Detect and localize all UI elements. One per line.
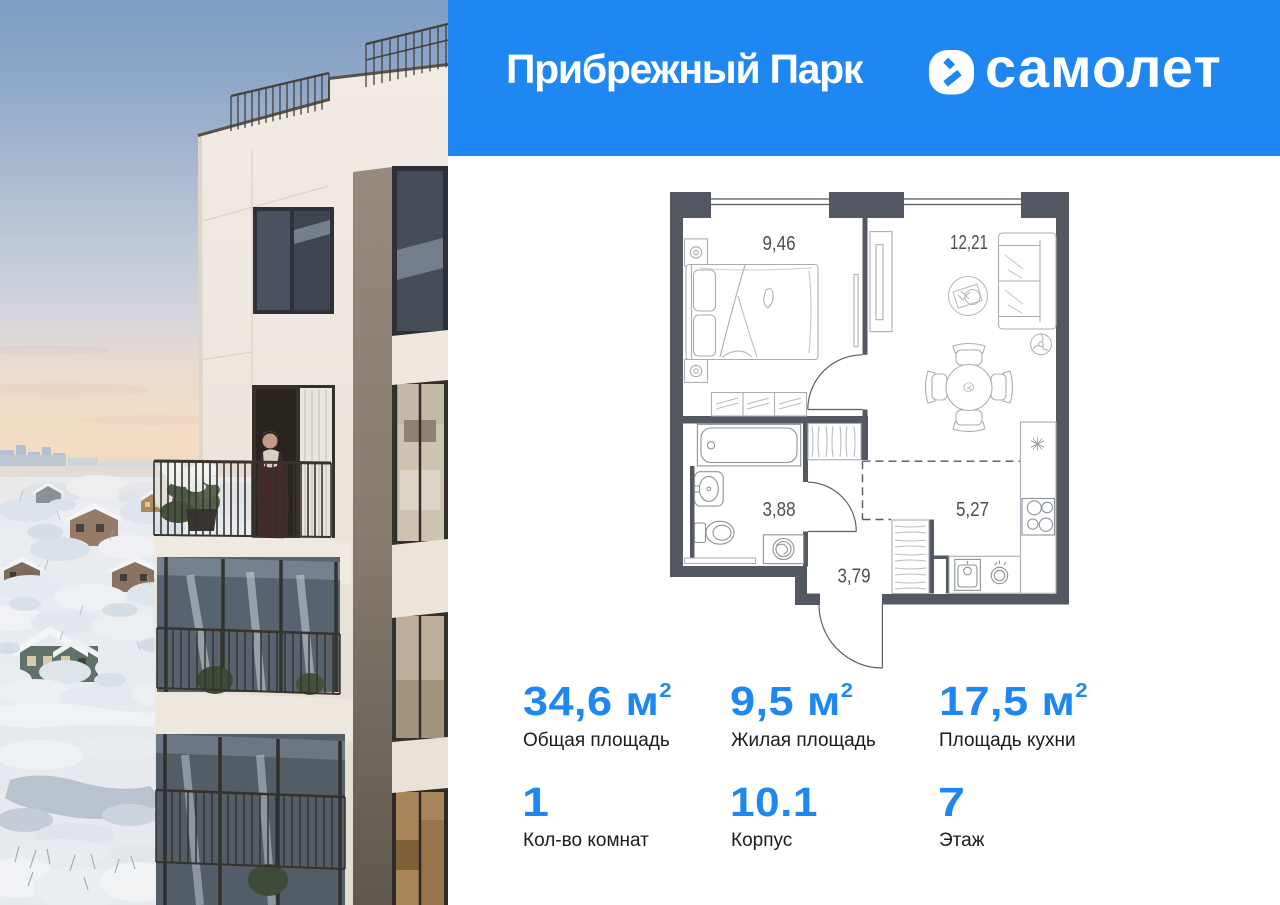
svg-text:3,88: 3,88	[763, 498, 796, 521]
svg-text:5,27: 5,27	[956, 498, 989, 521]
svg-text:12,21: 12,21	[950, 231, 988, 254]
svg-text:9,46: 9,46	[763, 232, 796, 255]
svg-text:3,79: 3,79	[838, 565, 871, 588]
